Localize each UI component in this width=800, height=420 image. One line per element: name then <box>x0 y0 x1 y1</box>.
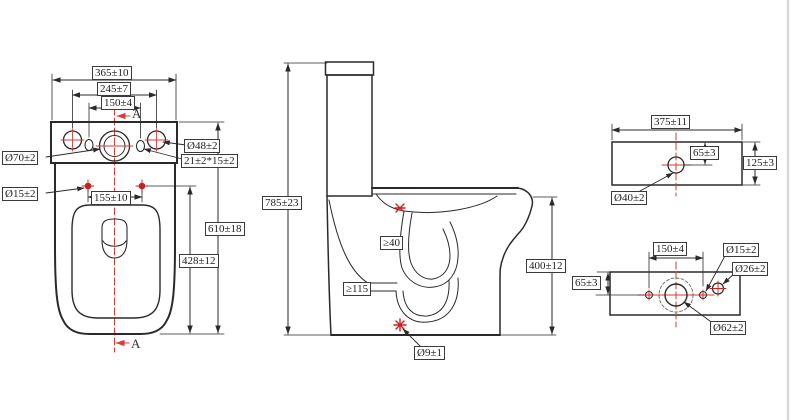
bowl-back-profile <box>327 196 331 335</box>
dim-rim-height-label: 400±12 <box>526 259 566 273</box>
slot-right <box>137 141 145 152</box>
tank-bottom-view <box>596 252 740 327</box>
section-marker-bottom: A <box>131 337 140 350</box>
dia-15-front-label: Ø15±2 <box>2 187 38 201</box>
dim-tank-depth-label: 125±3 <box>743 156 777 170</box>
dim-bolt-offset-label: 65±3 <box>572 276 601 290</box>
dim-seat-hole-spacing-label: 155±10 <box>91 191 131 205</box>
dia-40-label: Ø40±2 <box>611 191 647 205</box>
drawing-page: 365±10 245±7 150±4 A Ø70±2 Ø48±2 21±2*15… <box>0 0 800 420</box>
tank-lid <box>326 62 374 75</box>
dim-total-depth-label: 610±18 <box>205 222 245 236</box>
dim-overall-width-label: 365±10 <box>92 66 132 80</box>
tank-top-outline <box>612 142 742 185</box>
tank-top-view <box>612 124 760 196</box>
min-trap-label: ≥115 <box>343 282 371 296</box>
mark-rim-point <box>395 204 405 212</box>
dim-bolt-spacing-label: 150±4 <box>653 242 687 256</box>
dia-9-label: Ø9±1 <box>414 346 445 360</box>
min-gap-label: ≥40 <box>380 236 403 250</box>
tank-body <box>327 75 372 196</box>
slot-size-label: 21±2*15±2 <box>181 154 238 168</box>
slot-left <box>85 140 93 151</box>
drawing-canvas <box>0 0 800 420</box>
dia-70-label: Ø70±2 <box>2 151 38 165</box>
mark-base-point <box>394 319 406 331</box>
dia-26-label: Ø26±2 <box>732 262 768 276</box>
section-marker-top: A <box>132 107 141 120</box>
dim-seat-depth-label: 428±12 <box>179 254 219 268</box>
dim-hole-spacing-label: 245±7 <box>97 82 131 96</box>
dim-tank-hole-offset-label: 65±3 <box>690 146 719 160</box>
dia-15-bottom-label: Ø15±2 <box>723 243 759 257</box>
dia-48-label: Ø48±2 <box>184 139 220 153</box>
bowl-opening-outline <box>72 205 160 318</box>
dim-slot-spacing-label: 150±4 <box>101 96 135 110</box>
dia-62-label: Ø62±2 <box>710 321 746 335</box>
side-view <box>284 62 557 347</box>
dim-total-height-label: 785±23 <box>262 196 302 210</box>
dim-tank-width-label: 375±11 <box>651 115 690 129</box>
